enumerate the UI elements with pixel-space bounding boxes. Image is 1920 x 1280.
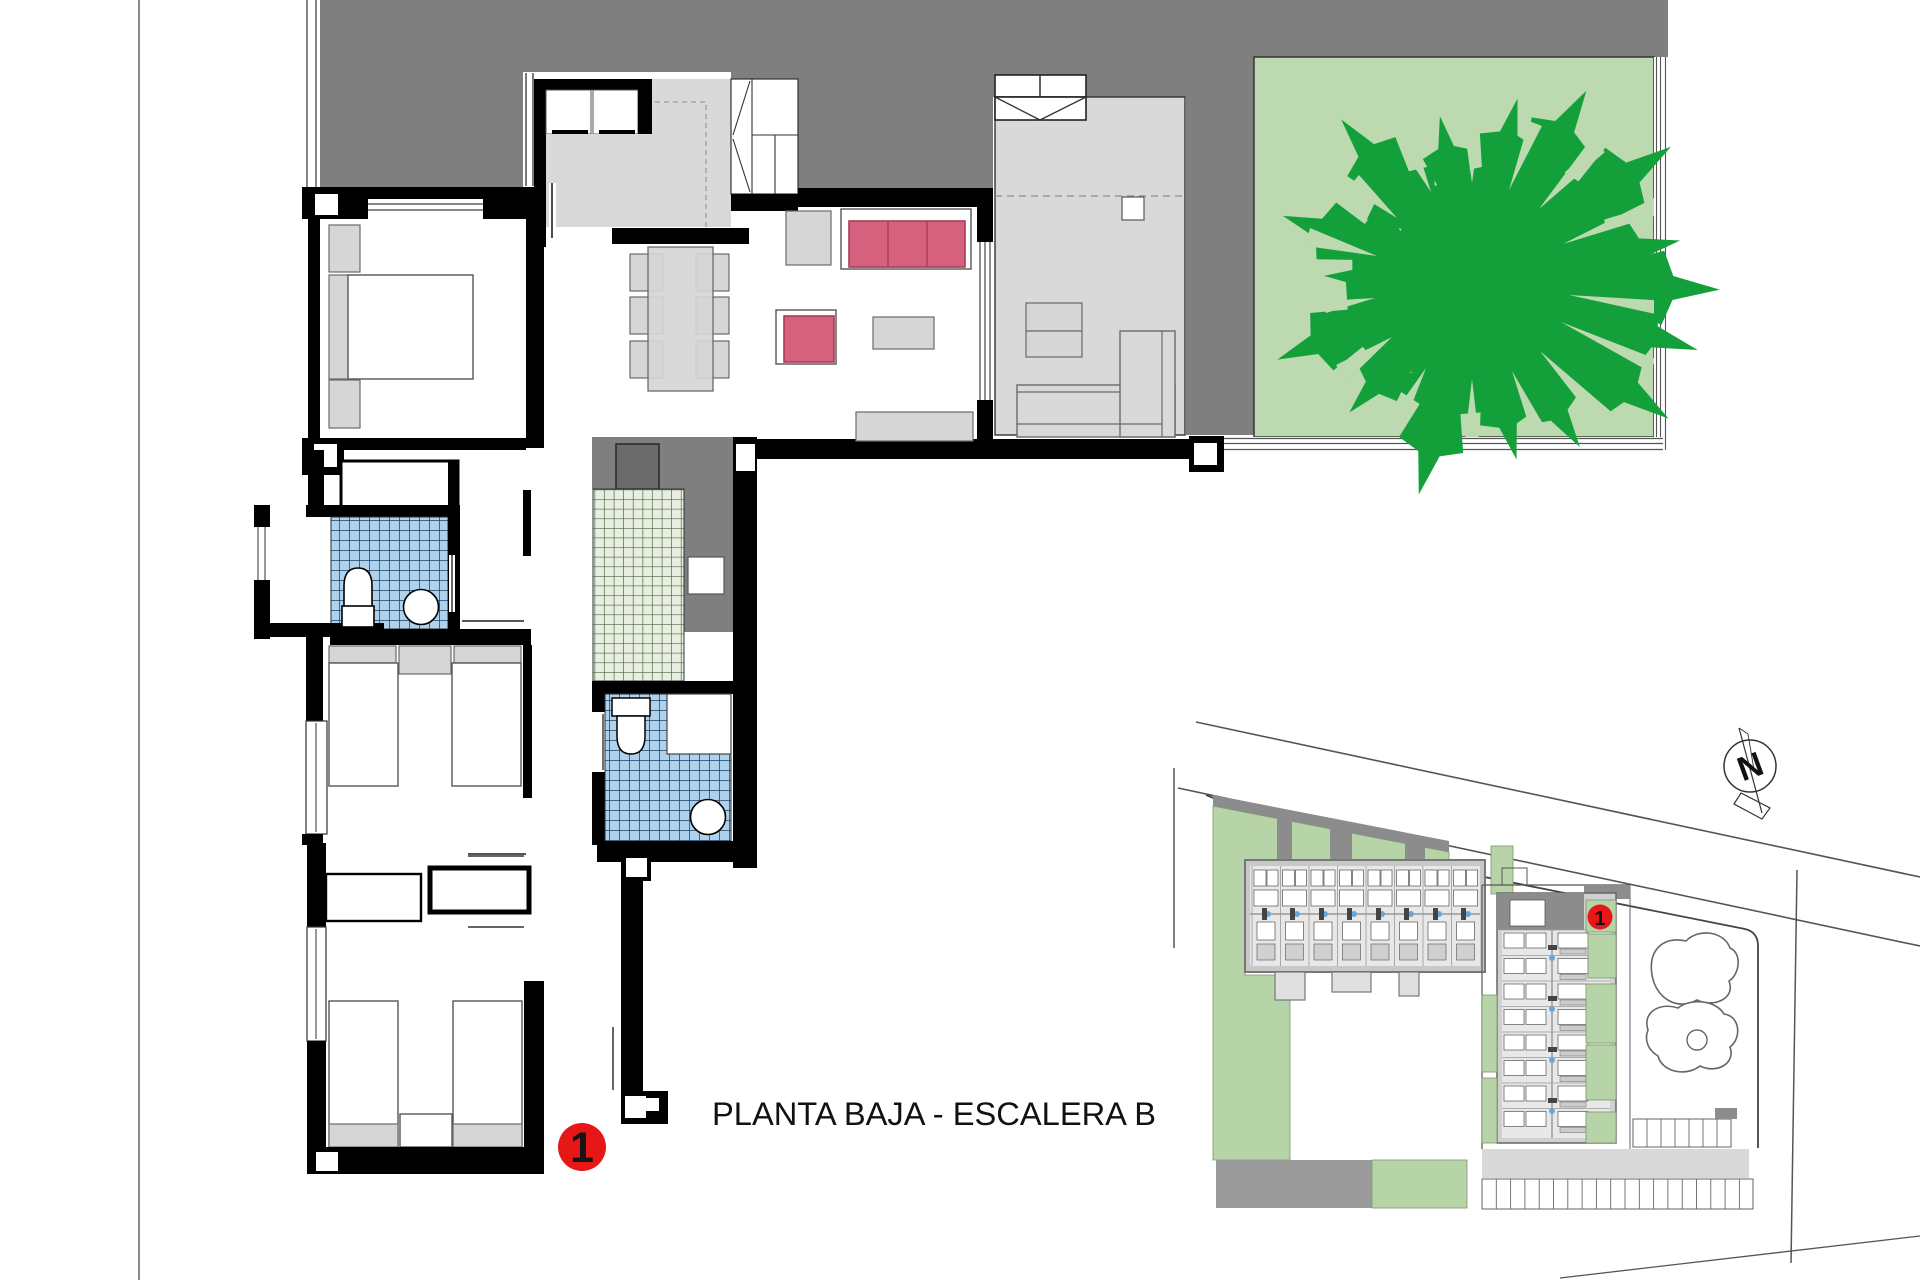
svg-text:1: 1 [1594,908,1605,930]
svg-text:PLANTA BAJA - ESCALERA B: PLANTA BAJA - ESCALERA B [712,1096,1156,1132]
svg-text:1: 1 [570,1124,594,1172]
